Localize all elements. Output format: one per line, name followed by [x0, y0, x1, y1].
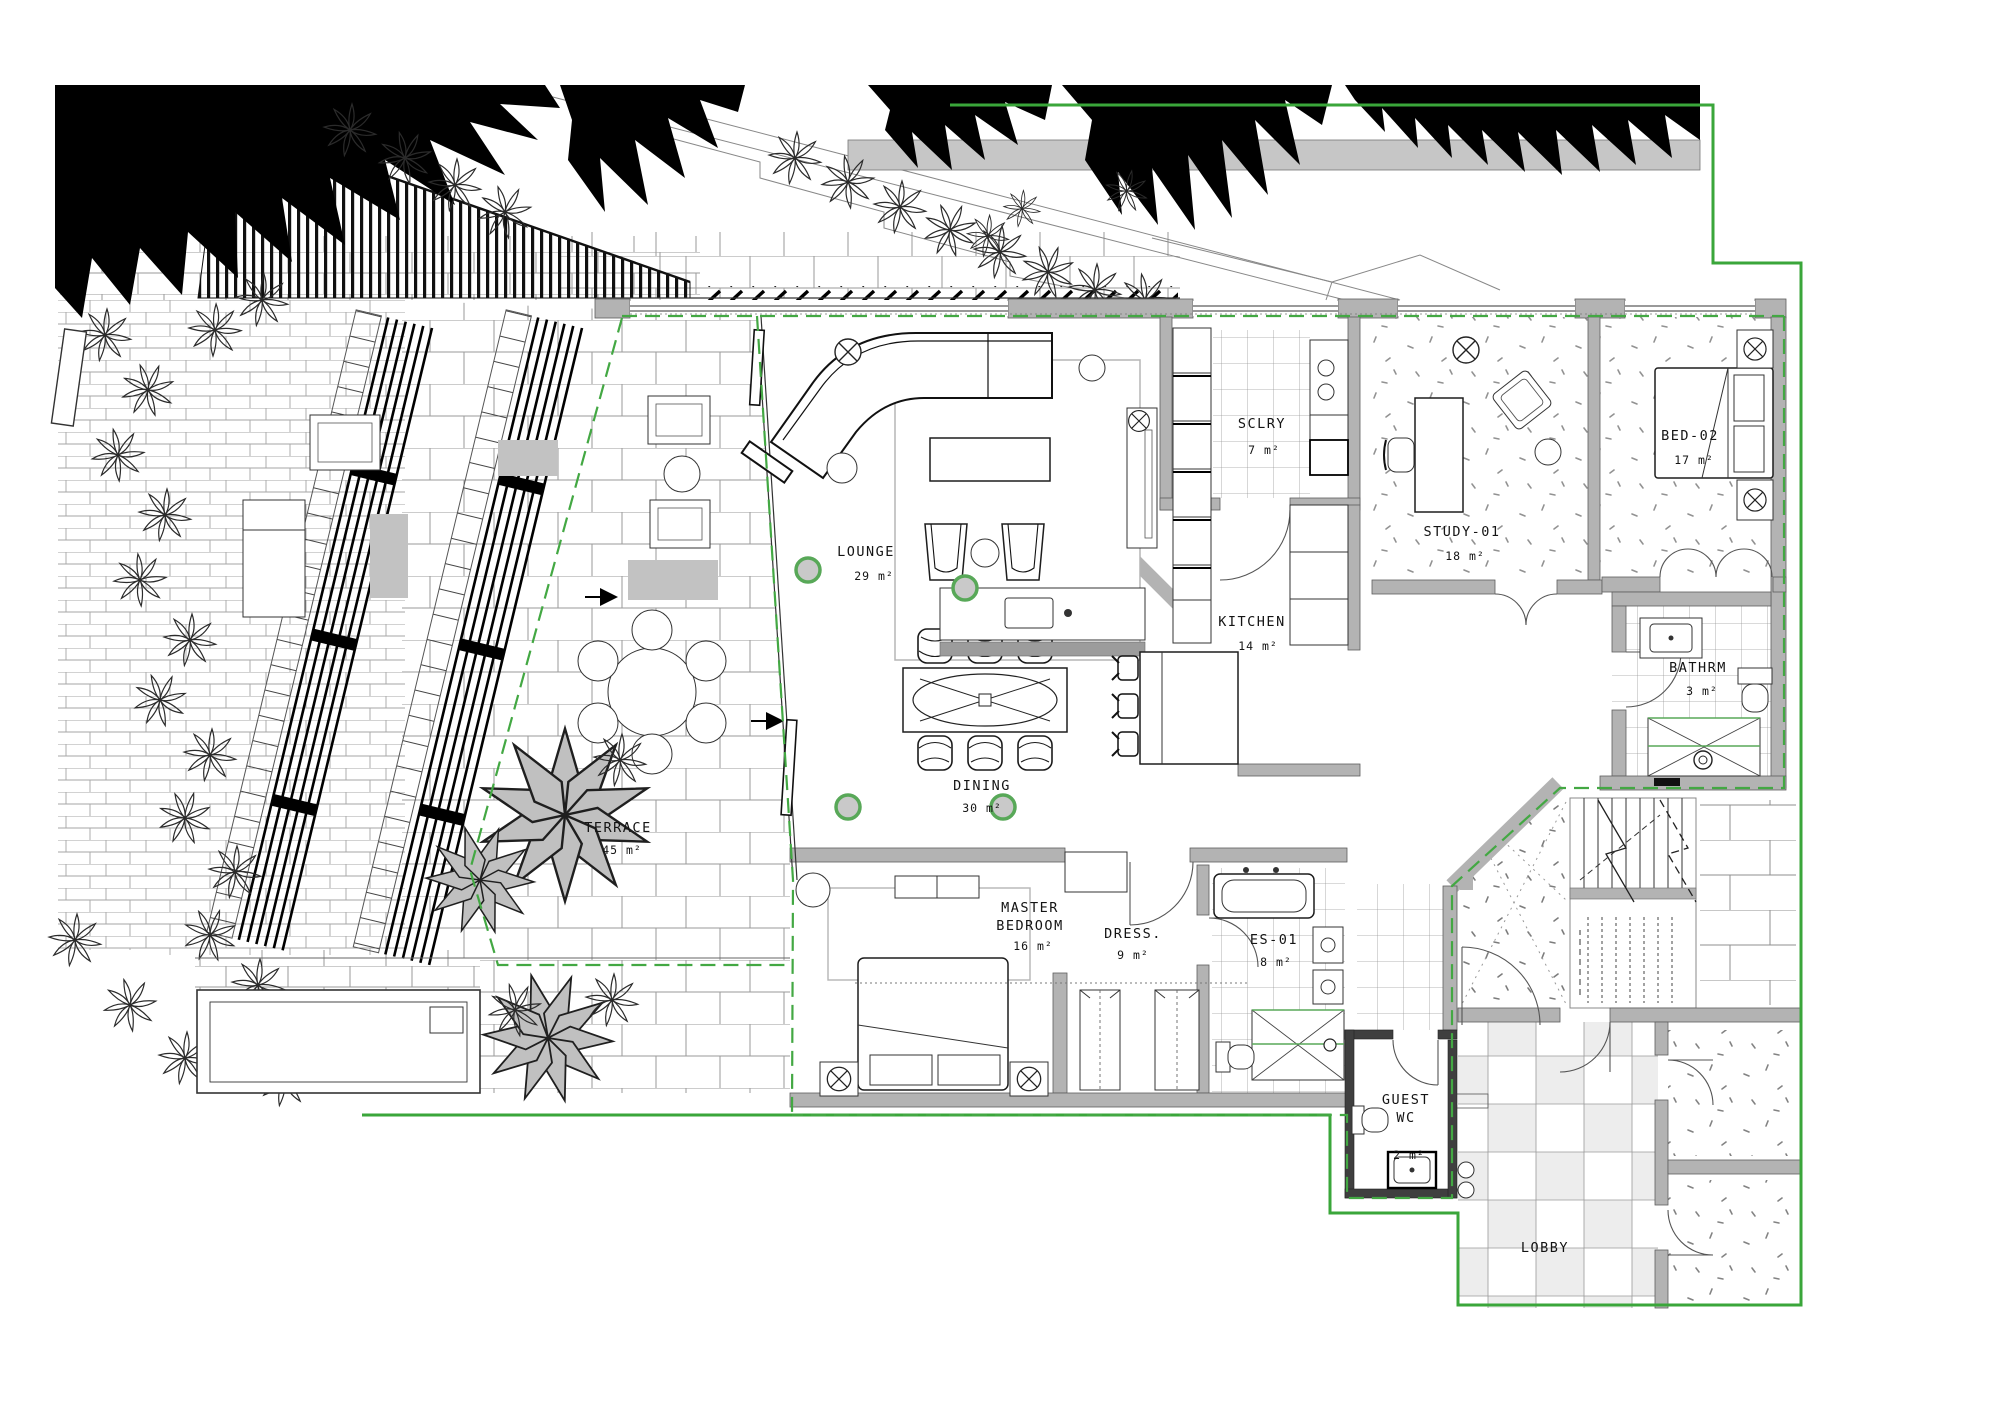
room-label-master-1: MASTER [1001, 900, 1059, 916]
column-icon [836, 795, 860, 819]
adjacent-room-floor [1668, 1180, 1795, 1308]
outdoor-side-table [664, 456, 700, 492]
adjacent-room-floor [1668, 1030, 1795, 1156]
room-area-dining: 30 m² [962, 801, 1002, 815]
planter-box [370, 514, 408, 598]
entry-corridor-floor [1357, 884, 1447, 1030]
pool-deck-paving [195, 950, 480, 992]
pillow [938, 1055, 1000, 1085]
armchair [1002, 524, 1044, 580]
room-label-scullery: SCLRY [1238, 416, 1286, 432]
toilet [1352, 1106, 1388, 1134]
ceiling-light-icon [827, 1067, 850, 1090]
desk [1415, 398, 1463, 512]
basin [1313, 927, 1343, 963]
staircase [1570, 798, 1696, 1008]
room-area-dress: 9 m² [1117, 948, 1149, 962]
pillow [1734, 375, 1764, 421]
pillow [1734, 426, 1764, 472]
dining-chair [1018, 736, 1052, 770]
outdoor-armchair [648, 396, 710, 444]
room-label-dress: DRESS. [1104, 926, 1162, 942]
slab-paving [1700, 800, 1796, 1005]
bench [895, 876, 937, 898]
room-area-ensuite: 8 m² [1260, 955, 1292, 969]
pillow [870, 1055, 932, 1085]
ceiling-light-icon [835, 339, 861, 365]
column-icon [953, 576, 977, 600]
tall-cabinet-run [1173, 328, 1211, 643]
ceiling-light-icon [1744, 489, 1766, 511]
room-area-lounge: 29 m² [854, 569, 894, 583]
scullery-floor [1213, 330, 1310, 498]
shower [1252, 1010, 1344, 1080]
side-table [827, 453, 857, 483]
room-label-kitchen: KITCHEN [1218, 614, 1285, 630]
room-label-terrace: TERRACE [584, 820, 651, 836]
room-area-scullery: 7 m² [1248, 443, 1280, 457]
room-area-guestwc: 2 m² [1393, 1148, 1425, 1162]
floorplan-canvas: LOUNGE 29 m² DINING 30 m² KITCHEN 14 m² … [0, 0, 2000, 1414]
kitchen-island [1112, 652, 1238, 764]
scullery-counter [1310, 340, 1348, 475]
lobby-floor [1458, 1022, 1658, 1308]
toilet [1738, 668, 1772, 712]
ceiling-light-icon [1017, 1067, 1040, 1090]
room-label-ensuite: ES-01 [1250, 932, 1298, 948]
room-label-study: STUDY-01 [1423, 524, 1500, 540]
room-label-bed02: BED-02 [1661, 428, 1719, 444]
fridge-tall-units [1290, 505, 1348, 645]
basin [1313, 970, 1343, 1004]
shower [1648, 718, 1760, 786]
armchair [925, 524, 967, 580]
side-table [1535, 439, 1561, 465]
side-table [1079, 355, 1105, 381]
room-area-bathroom: 3 m² [1686, 684, 1718, 698]
column-icon [796, 558, 820, 582]
pool [197, 990, 480, 1093]
room-label-master-2: BEDROOM [996, 918, 1063, 934]
bench [937, 876, 979, 898]
room-label-lounge: LOUNGE [837, 544, 895, 560]
ceiling-light-icon [1744, 338, 1766, 360]
toilet [1216, 1042, 1254, 1072]
ceiling-light-icon [1453, 337, 1479, 363]
room-area-terrace: 45 m² [602, 843, 642, 857]
room-area-bed02: 17 m² [1674, 453, 1714, 467]
shower-drain-icon [1694, 751, 1712, 769]
tree-canopy-icon [560, 85, 745, 212]
wardrobe [1065, 852, 1127, 892]
bath-mat [1654, 778, 1680, 786]
basin-icon [1458, 1162, 1474, 1178]
planter-box [498, 440, 558, 476]
room-label-dining: DINING [953, 778, 1011, 794]
basin-icon [1458, 1182, 1474, 1198]
floorplan-page: { "drawing": { "type": "architectural-fl… [0, 0, 2000, 1414]
sun-lounger [243, 500, 305, 617]
room-label-lobby: LOBBY [1521, 1240, 1569, 1256]
room-area-master: 16 m² [1013, 939, 1053, 953]
coffee-table [930, 438, 1050, 481]
desk-chair [1384, 438, 1414, 472]
outdoor-armchair [650, 500, 710, 548]
stair-landing [1570, 888, 1696, 899]
room-label-bathroom: BATHRM [1669, 660, 1727, 676]
pool-step [430, 1007, 463, 1033]
planter-box [628, 560, 718, 600]
dining-chair [968, 736, 1002, 770]
room-label-guestwc-2: WC [1396, 1110, 1415, 1126]
room-area-study: 18 m² [1445, 549, 1485, 563]
dining-chair [918, 736, 952, 770]
ceiling-light-icon [1129, 411, 1150, 432]
chair [796, 873, 830, 907]
room-area-kitchen: 14 m² [1238, 639, 1278, 653]
side-table [971, 539, 999, 567]
room-label-guestwc-1: GUEST [1382, 1092, 1430, 1108]
